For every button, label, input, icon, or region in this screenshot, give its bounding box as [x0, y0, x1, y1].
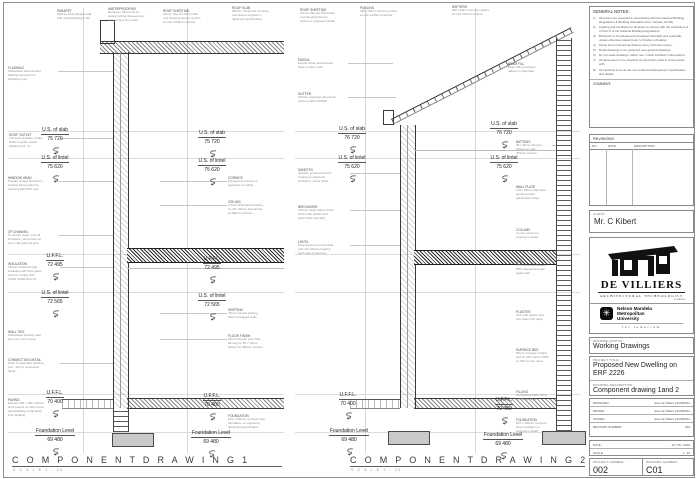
leader-arrow-icon [206, 413, 218, 421]
note-text: All electrical to be as set out on Elect… [599, 68, 690, 76]
drawing-number-cell: DRAWING NUMBER : C01 [643, 459, 693, 475]
level-label: U.F.F.L. [203, 257, 222, 264]
col-no: NO. [590, 143, 606, 149]
annotation-note: SURFACE BED 85mm concrete surfacebed on … [516, 348, 552, 364]
annotation-note: BATTENS 38 x 38mm SA pinebattens at max4… [516, 140, 552, 156]
project-box: PROJECT TITLE : Proposed New Dwelling on… [589, 356, 694, 396]
annotation-body: Galvanised steel counterflashing dressed… [8, 70, 58, 82]
scale-row: SCALE : 1 : 20 [590, 449, 693, 456]
date-value: 10 / 05 / 2015 [672, 443, 690, 447]
date-scale-box: DATE : 10 / 05 / 2015 SCALE : 1 : 20 [589, 440, 694, 456]
credit-label: DESIGNED : [593, 401, 610, 405]
annotation-note: PARAPET 230mm brick parapet wallwith met… [57, 9, 101, 21]
annotation-note: COLUMN Corner column toengineer's detail [516, 228, 552, 240]
annotation-note: FLOOR FINISH 22mm Oregon pine T&Gfloorin… [228, 334, 280, 350]
leader-line [58, 71, 113, 72]
note-text: Lighting and ventilation to all areas to… [599, 25, 690, 33]
leader-line [58, 235, 113, 236]
annotation-body: Compacted earth fillingin 150mm layers [516, 394, 552, 402]
annotation-note: FOUNDATION 615 x 230mm concretestrip fou… [516, 418, 552, 434]
note-text: Detail drawings to be preferred over gen… [599, 48, 671, 52]
annotation-body: Full bore rainwater outlet.Refer to gutt… [9, 137, 61, 149]
project-title-value: Proposed New Dwelling on ERF 2226 [590, 362, 693, 378]
level-label: U.S. of slab [198, 131, 226, 138]
annotation-body: Refer to assembly drawing(A3 - 10) for c… [8, 362, 60, 374]
leader-stem [83, 8, 84, 453]
level-marker: U.F.F.L. 72 495 [190, 247, 234, 289]
annotation-body: 375 micron embossedDPC stepped throughca… [516, 264, 552, 276]
drawing2-scale: S C A L E 1 : 20 [351, 468, 402, 472]
level-value: 72 495 [190, 265, 234, 271]
annotation-body: 228 x 50mm SA pine raftersat max 760mm c… [452, 9, 498, 17]
leader-line [350, 245, 400, 246]
leader-line [350, 210, 400, 211]
level-value: 76 720 [330, 135, 374, 141]
level-value: 69 480 [186, 439, 236, 445]
table-divider [632, 149, 633, 205]
annotation-body: 76mm meranti skirtingfixed to plugged wa… [228, 312, 278, 320]
annotation-body: 6.4mm Rhinoboard ceilingon 38 x 38mm bra… [228, 204, 280, 216]
annotation-body: 615 x 230mm concrete stripfoundation to … [228, 418, 280, 430]
general-notes-title: GENERAL NOTES: [590, 7, 693, 15]
general-note: 4) Damp proof course/membranes every 3rd… [593, 43, 690, 47]
firm-house-logo [590, 240, 693, 280]
credits-box: DESIGNED : Juan de Villiers 21/08/2012 D… [589, 398, 694, 437]
annotation-body: 38 x 38mm SA pinebattens at max470mm cen… [516, 144, 552, 156]
annotation-body: 135mm Isoboard rigidinsulation with fibr… [8, 266, 60, 282]
annotation-note: CORNICE Polystyrene cornice toperimeter … [228, 176, 280, 188]
annotation-body: 270mm cavity wall in stockbricks with pl… [298, 209, 350, 221]
annotation-note: GUTTER 125mm seamless aluminiumgutter to… [298, 92, 348, 104]
leader-line [348, 63, 393, 64]
annotation-note: CONNECTION DETAIL Refer to assembly draw… [8, 358, 60, 374]
level-value: 69 480 [30, 437, 80, 443]
level-value: 69 480 [324, 437, 374, 443]
annotation-body: Prestressed concrete lintelwith min 150m… [298, 244, 350, 256]
cavity-line [407, 125, 408, 408]
annotation-note: CP CHANNEL To ensure water runs offbrick… [8, 230, 58, 246]
note-text: Damp proof course/membranes every 3rd br… [599, 43, 672, 47]
leader-arrow-icon [206, 313, 218, 321]
drawing1-scale: S C A L E 1 : 20 [13, 468, 64, 472]
project-number-cell: PROJECT NUMBER : 002 [590, 459, 641, 475]
note-text: Brickwork to be plastered and painted in… [599, 34, 690, 42]
general-note: 2) Lighting and ventilation to all areas… [593, 25, 690, 33]
level-label: Foundation Level [35, 429, 75, 436]
level-value: 70 400 [190, 402, 234, 408]
general-note: 7) All dimensions to be checked on site … [593, 58, 690, 66]
level-label: U.F.F.L. [203, 394, 222, 401]
note-text: Do not scale drawings; rather use / chec… [599, 53, 685, 57]
annotation-note: WALL PLATE 114 x 38mm wall plateanchored… [516, 185, 552, 201]
level-line [295, 292, 580, 293]
cavity-wall [400, 125, 416, 408]
table-divider [606, 149, 607, 205]
general-note: 6) Do not scale drawings; rather use / c… [593, 53, 690, 57]
annotation-body: Everite Nutec fascia boardfixed to rafte… [298, 62, 346, 70]
university-icon: ✳ [600, 307, 613, 320]
drawing-number-value: C01 [643, 464, 693, 476]
level-marker: U.S. of lintel 72 565 [33, 281, 77, 323]
annotation-body: Sandtex textured exteriorcoating on plas… [298, 172, 350, 184]
annotation-note: FLASHING Galvanised steel counterflashin… [8, 66, 58, 82]
annotation-note: BRICKWORK 270mm cavity wall in stockbric… [298, 205, 350, 221]
level-value: 69 480 [478, 441, 528, 447]
credit-row: DRAWN : Juan de Villiers 21/08/2012 [590, 407, 693, 415]
general-note: 5) Detail drawings to be preferred over … [593, 48, 690, 52]
annotation-body: Corner column toengineer's detail [516, 232, 552, 240]
general-notes-list: 1) All work to be executed in accordance… [590, 15, 693, 78]
credit-value: 002 [685, 425, 690, 429]
level-value: 75 620 [482, 164, 526, 170]
annotation-note: WATERPROOFING Derbigum SP4 torch-onwater… [108, 7, 156, 23]
university-name: Nelson Mandela Metropolitan University [617, 306, 652, 321]
level-label: U.S. of lintel [490, 156, 519, 163]
leader-line [552, 145, 556, 146]
annotation-note: LINTEL Prestressed concrete lintelwith m… [298, 240, 350, 256]
leader-stem [187, 8, 188, 453]
annotation-note: PLASTER One coat plaster andtwo coats PV… [516, 310, 552, 322]
leader-line [160, 205, 227, 206]
revisions-title: REVISIONS: [590, 135, 693, 142]
status-box: DRAWING STATUS : Working Drawings [589, 337, 694, 354]
credit-value: Juan de Villiers 21/08/2012 [654, 401, 690, 405]
level-value: 75 620 [190, 167, 234, 173]
level-value: 76 720 [482, 130, 526, 136]
drawing-sheet: U.S. of slab 75 720 U.S. of slab 75 720 … [0, 0, 697, 479]
annotation-note: ROOF SHEETING 0.6mm Klip-lok 700 profile… [300, 8, 348, 24]
fascia-gutter [383, 110, 394, 125]
leader-line [160, 339, 227, 340]
level-label: U.S. of lintel [41, 156, 70, 163]
client-box: CLIENT : Mr. C Kibert [589, 210, 694, 233]
logo-box: DE VILLIERS ARCHITECTURAL TECHNOLOGIST i… [589, 237, 694, 334]
annotation-note: DPC 375 micron embossedDPC stepped throu… [516, 260, 552, 276]
project-number-value: 002 [590, 464, 641, 476]
credit-label: REVISION NUMBER : [593, 425, 623, 429]
level-label: Foundation Level [191, 431, 231, 438]
level-label: U.F.F.L. [46, 254, 65, 261]
revisions-box: REVISIONS: NO. DATE DESCRIPTION [589, 134, 694, 206]
annotation-note: ROOF SHEETING 0.6mm Klip-lok 700 profile… [163, 9, 211, 25]
annotation-body: One coat plaster andtwo coats PVA paint [516, 314, 552, 322]
annotation-note: ROOF SLAB 255mm reinforced concreteroof … [232, 6, 278, 22]
university-line3: University [617, 316, 652, 321]
level-label: U.S. of slab [338, 127, 366, 134]
annotation-note: FILLING Compacted earth fillingin 150mm … [516, 390, 552, 402]
level-value: 72 565 [33, 299, 77, 305]
university-tagline: for tomorrow [600, 323, 683, 329]
credit-row: REVISION NUMBER : 002 [590, 423, 693, 430]
level-label: U.S. of slab [490, 122, 518, 129]
annotation-body: 230mm brick parapet wallwith metal flash… [57, 13, 101, 21]
comment-label: COMMENT: [590, 79, 693, 87]
annotation-body: Exterior 200 x 100 x 50mmbrick pavers on… [8, 402, 60, 418]
annotation-body: 85mm concrete surfacebed on 250 micron D… [516, 352, 552, 364]
leader-arrow-icon [206, 178, 218, 186]
credit-value: Juan de Villiers 21/08/2012 [654, 417, 690, 421]
annotation-body: 255mm reinforced concreteroof slab to en… [232, 10, 278, 22]
level-label: U.S. of lintel [41, 291, 70, 298]
annotation-note: FOUNDATION 615 x 230mm concrete stripfou… [228, 414, 280, 430]
annotation-body: 125mm seamless aluminiumgutter to fall t… [298, 96, 348, 104]
level-label: Foundation Level [483, 433, 523, 440]
annotation-body: Derbigum SP4 torch-onwaterproofing dress… [108, 11, 156, 23]
status-value: Working Drawings [590, 343, 693, 351]
scale-value: 1 : 20 [682, 451, 690, 455]
annotation-note: SKIRTING 76mm meranti skirtingfixed to p… [228, 308, 278, 320]
credit-label: DRAWN : [593, 409, 606, 413]
annotation-note: CEILING 6.4mm Rhinoboard ceilingon 38 x … [228, 200, 280, 216]
annotation-note: BEAM FILL Beam filling betweenrafters on… [508, 62, 548, 74]
drawing1-title: C O M P O N E N T D R A W I N G 1 [12, 455, 250, 465]
strip-footing [388, 431, 430, 445]
annotation-body: To ensure water runs offbrickwork, weep … [8, 234, 58, 246]
credit-row: DESIGNED : Juan de Villiers 21/08/2012 [590, 399, 693, 407]
university-logo-row: ✳ Nelson Mandela Metropolitan University [590, 303, 693, 322]
annotation-body: Galvanised butterfly wallties every 3rd … [8, 334, 58, 342]
general-note: 3) Brickwork to be plastered and painted… [593, 34, 690, 42]
general-note: 8) All electrical to be as set out on El… [593, 68, 690, 76]
annotation-body: Beam filling betweenrafters on wall plat… [508, 66, 548, 74]
leader-line [348, 97, 396, 98]
level-value: 70 400 [326, 401, 370, 407]
annotation-body: 114 x 38mm wall plateanchored withgalvan… [516, 189, 552, 201]
drawing-description-value: Component drawing 1and 2 [590, 387, 693, 395]
cavity-line [120, 52, 121, 408]
annotation-body: 0.6mm Klip-lok 700 profileroof sheeting … [163, 13, 211, 25]
level-label: U.F.F.L. [495, 398, 514, 405]
level-value: 75 620 [33, 164, 77, 170]
annotation-note: PAVING Exterior 200 x 100 x 50mmbrick pa… [8, 398, 60, 418]
foundation-wall [113, 407, 129, 432]
level-value: 70 400 [482, 406, 526, 412]
leader-arrow-icon [49, 310, 61, 318]
annotation-body: 615 x 230mm concretestrip foundation toe… [516, 422, 552, 434]
general-notes-box: GENERAL NOTES: 1) All work to be execute… [589, 6, 694, 128]
annotation-note: FASCIA Everite Nutec fascia boardfixed t… [298, 58, 346, 70]
leader-arrow-icon [498, 175, 510, 183]
level-label: U.F.F.L. [339, 393, 358, 400]
annotation-body: 150 x 50mm SA pine purlinsat max 1200mm … [360, 10, 406, 18]
col-date: DATE [606, 143, 632, 149]
annotation-note: INSULATION 135mm Isoboard rigidinsulatio… [8, 262, 60, 282]
cavity-wall [113, 52, 129, 408]
annotation-body: 22mm Oregon pine T&Gflooring on 50 x 76m… [228, 338, 280, 350]
level-label: U.S. of lintel [198, 159, 227, 166]
col-description: DESCRIPTION [632, 143, 657, 149]
credit-label: ISSUED : [593, 417, 606, 421]
annotation-note: SANDTEX Sandtex textured exteriorcoating… [298, 168, 350, 184]
drawing2-title: C O M P O N E N T D R A W I N G 2 [350, 455, 588, 465]
firm-subtitle: ARCHITECTURAL TECHNOLOGIST [598, 292, 685, 298]
client-name: Mr. C Kibert [590, 216, 693, 227]
annotation-note: RAFTERS 228 x 50mm SA pine raftersat max… [452, 5, 498, 17]
level-value: 75 720 [190, 139, 234, 145]
annotation-body: Powder coated aluminiumwindow frame buil… [8, 180, 58, 192]
numbers-box: PROJECT NUMBER : 002 DRAWING NUMBER : C0… [589, 458, 694, 476]
strip-footing [112, 433, 154, 447]
annotation-body: 0.6mm Klip-lok 700 profileroof sheeting … [300, 12, 348, 24]
note-text: All work to be executed in accordance wi… [599, 16, 690, 24]
annotation-note: ROOF OUTLET Full bore rainwater outlet.R… [9, 133, 61, 149]
note-text: All dimensions to be checked on site bef… [599, 58, 690, 66]
annotation-note: WINDOW HEAD Powder coated aluminiumwindo… [8, 176, 58, 192]
firm-name: DE VILLIERS [590, 280, 693, 291]
firm-tag: in training [590, 298, 693, 301]
general-note: 1) All work to be executed in accordance… [593, 16, 690, 24]
level-label: U.S. of lintel [198, 294, 227, 301]
credit-value: Juan de Villiers 21/08/2012 [654, 409, 690, 413]
leader-arrow-icon [206, 276, 218, 284]
credit-row: ISSUED : Juan de Villiers 21/08/2012 [590, 415, 693, 423]
level-label: Foundation Level [329, 429, 369, 436]
date-row: DATE : 10 / 05 / 2015 [590, 441, 693, 449]
scale-label: SCALE : [593, 451, 605, 455]
title-underline [12, 466, 282, 467]
annotation-note: WALL TIES Galvanised butterfly wallties … [8, 330, 58, 342]
credits-rows: DESIGNED : Juan de Villiers 21/08/2012 D… [590, 399, 693, 430]
level-label: U.S. of lintel [338, 156, 367, 163]
tall-wall-section [556, 38, 572, 431]
annotation-body: Polystyrene cornice toperimeter of ceili… [228, 180, 280, 188]
level-label: U.F.F.L. [46, 391, 65, 398]
annotation-note: PURLINS 150 x 50mm SA pine purlinsat max… [360, 6, 406, 18]
leader-line [60, 363, 113, 364]
date-label: DATE : [593, 443, 602, 447]
title-underline [350, 466, 585, 467]
drawing-description-label: DRAWING DESCRIPTION : [590, 380, 693, 387]
